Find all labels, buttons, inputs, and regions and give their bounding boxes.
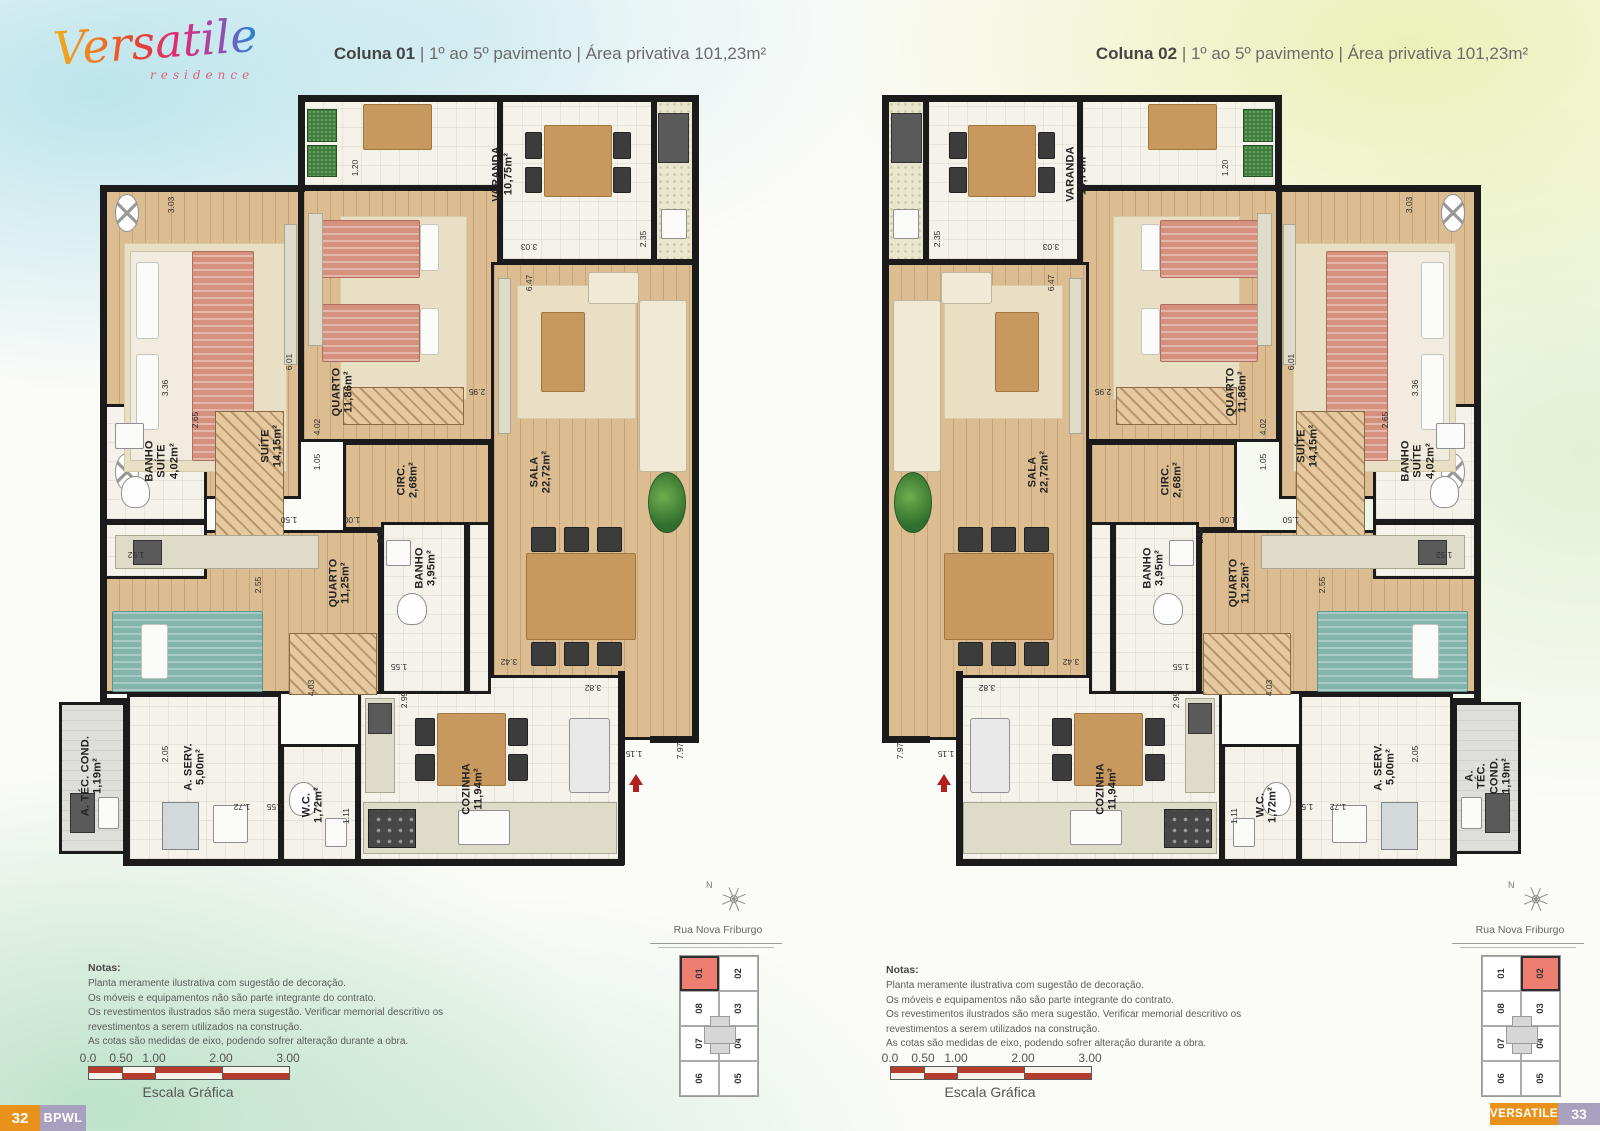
furniture-chair: [525, 132, 543, 159]
furniture-toilet: [1153, 593, 1183, 625]
furniture-pillow: [136, 262, 160, 338]
dimension-label: 6.47: [524, 275, 534, 292]
furniture-appliance: [1485, 793, 1510, 833]
scale-bar-cell: [89, 1073, 123, 1079]
dimension-label: 2.35: [638, 231, 648, 248]
scale-bar-cell: [891, 1073, 925, 1079]
furniture-sink: [458, 810, 510, 845]
scale-tick: 2.00: [209, 1051, 232, 1065]
room-label-a-tec-cond: A. TÉC. COND. 1,19m²: [80, 736, 105, 816]
dimension-label: 3.03: [166, 197, 176, 214]
furniture-pillow: [1141, 308, 1161, 355]
furniture-sink: [893, 209, 920, 240]
furniture-chair: [1145, 754, 1165, 782]
furniture-chair: [958, 527, 983, 551]
key-plan-left: NRua Nova Friburgo0102080307040605: [648, 872, 788, 1104]
scale-tick: 0.50: [911, 1051, 934, 1065]
key-unit-number: 05: [733, 1073, 744, 1084]
room-label-circ: CIRC. 2,68m²: [396, 462, 421, 498]
elevator-core: [710, 1016, 730, 1054]
dimension-label: 3.03: [1042, 242, 1059, 252]
dimension-label: 3.42: [1063, 657, 1080, 667]
scale-tick: 1.00: [142, 1051, 165, 1065]
furniture-sink: [1436, 423, 1466, 450]
furniture-appliance: [368, 703, 392, 734]
furniture-table: [1148, 104, 1216, 150]
scale-bar-cell: [156, 1073, 223, 1079]
room-label-banho: BANHO 3,95m²: [1142, 547, 1167, 588]
notes-line: Planta meramente ilustrativa com sugestã…: [88, 977, 508, 992]
key-unit-number: 01: [1496, 968, 1507, 979]
dimension-label: 2.55: [253, 577, 263, 594]
notes-line: As cotas são medidas de eixo, podendo so…: [886, 1037, 1306, 1052]
furniture-stove: [368, 809, 417, 849]
key-unit-number: 01: [694, 968, 705, 979]
furniture-table: [526, 553, 636, 641]
dimension-label: 3.82: [979, 683, 996, 693]
furniture-chair: [415, 754, 435, 782]
scale-bar-graphic: [88, 1066, 290, 1080]
furniture-appliance: [658, 113, 689, 163]
furniture-pillow: [420, 224, 440, 271]
dimension-label: 2.35: [932, 231, 942, 248]
room-label-banho-suite: BANHO SUÍTE 4,02m²: [1399, 440, 1436, 481]
furniture-planter: [1243, 145, 1273, 177]
room-label-quarto2: QUARTO 11,25m²: [327, 559, 352, 608]
wall: [123, 859, 624, 866]
furniture-sofa: [588, 272, 638, 304]
notes-line: Os móveis e equipamentos não são parte i…: [886, 994, 1306, 1009]
dimension-label: 1.55: [266, 802, 283, 812]
dimension-label: 1.15: [938, 749, 955, 759]
furniture-pillow: [1141, 224, 1161, 271]
notes-title: Notas:: [886, 964, 1306, 976]
dimension-label: 1.55: [391, 662, 408, 672]
column-01-header: Coluna 01 | 1º ao 5º pavimento | Área pr…: [320, 44, 780, 64]
wall: [692, 95, 699, 744]
furniture-bed: [322, 220, 420, 277]
dimension-label: 3.36: [1410, 380, 1420, 397]
key-unit-02: 02: [1521, 956, 1560, 991]
wall: [100, 185, 107, 705]
dimension-label: 2.05: [160, 745, 170, 762]
dimension-label: 3.03: [521, 242, 538, 252]
key-unit-01: 01: [680, 956, 719, 991]
furniture-chair: [415, 718, 435, 746]
column-02-title: Coluna 02: [1096, 44, 1177, 63]
elevator-core: [1512, 1016, 1532, 1054]
key-building-outline: 0102080307040605: [1481, 955, 1561, 1097]
wall: [956, 859, 1457, 866]
furniture-sink: [1169, 540, 1194, 567]
furniture-chair: [531, 527, 556, 551]
scale-bar-cell: [925, 1073, 959, 1079]
scale-tick: 0.0: [80, 1051, 97, 1065]
furniture-chair: [1052, 718, 1072, 746]
furniture-stove: [1164, 809, 1213, 849]
column-01-info: | 1º ao 5º pavimento | Área privativa 10…: [420, 44, 766, 63]
dimension-label: 1.00: [343, 515, 360, 525]
furniture-chair: [1052, 754, 1072, 782]
room-label-suite: SUÍTE 14,15m²: [1296, 424, 1321, 466]
key-plan-right: NRua Nova Friburgo0102080307040605: [1450, 872, 1590, 1104]
furniture-chair: [613, 167, 631, 194]
furniture-sink: [661, 209, 688, 240]
furniture-chair: [1024, 527, 1049, 551]
dimension-label: 2.55: [1195, 527, 1205, 544]
dimension-label: 1.05: [312, 454, 322, 471]
street-line: [1452, 943, 1584, 944]
logo-subtitle-text: residence: [150, 68, 315, 82]
dimension-label: 4.02: [312, 418, 322, 435]
room-cabinet-shaft: [467, 522, 491, 694]
furniture-pillow: [136, 354, 160, 430]
dimension-label: 4.03: [1264, 680, 1274, 697]
entrance-arrow-icon: [937, 774, 951, 785]
dimension-label: 3.36: [160, 380, 170, 397]
room-cabinet-shaft: [1089, 522, 1113, 694]
key-unit-02: 02: [719, 956, 758, 991]
key-unit-06: 06: [1482, 1061, 1521, 1096]
column-02-info: | 1º ao 5º pavimento | Área privativa 10…: [1182, 44, 1528, 63]
dimension-label: 2.05: [1410, 745, 1420, 762]
north-label: N: [1508, 880, 1515, 890]
furniture-counter: [284, 224, 297, 365]
floor-plan-column-01: VARANDA 10,75m²SUÍTE 14,15m²QUARTO 11,86…: [103, 98, 695, 862]
furniture-sink: [115, 423, 145, 450]
street-line: [1460, 947, 1576, 948]
scale-tick: 1.00: [944, 1051, 967, 1065]
wall: [298, 95, 305, 192]
furniture-planter: [307, 109, 337, 141]
furniture-table: [968, 125, 1036, 198]
dimension-label: 1.55: [1173, 662, 1190, 672]
room-label-banho-suite: BANHO SUÍTE 4,02m²: [144, 440, 181, 481]
street-line: [658, 947, 774, 948]
scale-bar-row: [89, 1073, 289, 1079]
furniture-chair: [613, 132, 631, 159]
dimension-label: 1.20: [350, 160, 360, 177]
room-label-sala: SALA 22,72m²: [529, 451, 554, 493]
furniture-wardrobe: [289, 633, 377, 696]
furniture-counter: [1283, 224, 1296, 365]
furniture-counter: [308, 213, 322, 347]
dimension-label: 6.01: [1286, 353, 1296, 370]
dimension-label: 3.42: [500, 657, 517, 667]
furniture-plant-icon: [648, 472, 686, 533]
column-02-header: Coluna 02 | 1º ao 5º pavimento | Área pr…: [1082, 44, 1542, 64]
key-unit-number: 06: [694, 1073, 705, 1084]
furniture-wardrobe: [343, 387, 464, 425]
furniture-table: [541, 312, 585, 392]
dimension-label: 3.82: [585, 683, 602, 693]
scale-caption: Escala Gráfica: [88, 1084, 288, 1100]
furniture-table: [363, 104, 431, 150]
furniture-chair: [525, 167, 543, 194]
notes-line: Os revestimentos ilustrados são mera sug…: [886, 1008, 1306, 1023]
furniture-wardrobe: [1203, 633, 1291, 696]
brochure-page: Versatile residence Coluna 01 | 1º ao 5º…: [0, 0, 1600, 1131]
scale-caption: Escala Gráfica: [890, 1084, 1090, 1100]
furniture-chair: [991, 527, 1016, 551]
dimension-label: 1.55: [1297, 802, 1314, 812]
furniture-pillow: [1412, 624, 1439, 679]
dimension-label: 4.03: [306, 680, 316, 697]
street-line: [650, 943, 782, 944]
furniture-table: [995, 312, 1039, 392]
furniture-washing-machine: [1381, 802, 1418, 849]
dimension-label: 1.05: [1258, 454, 1268, 471]
compass-icon: [715, 882, 751, 920]
furniture-bed: [1160, 220, 1258, 277]
dimension-label: 6.01: [284, 353, 294, 370]
furniture-appliance: [891, 113, 922, 163]
scale-bar-cell: [223, 1073, 289, 1079]
furniture-fridge: [970, 718, 1010, 793]
room-label-cozinha: COZINHA 11,94m²: [1095, 764, 1120, 816]
scale-bar-cell: [1025, 1073, 1091, 1079]
key-unit-number: 03: [1535, 1003, 1546, 1014]
dimension-label: 7.97: [895, 743, 905, 760]
scale-tick-labels: 0.00.501.002.003.00: [890, 1051, 1100, 1066]
furniture-table: [544, 125, 612, 198]
dimension-label: 4.02: [1258, 418, 1268, 435]
key-unit-number: 02: [733, 968, 744, 979]
versatile-logo: Versatile residence: [55, 26, 315, 82]
key-unit-01: 01: [1482, 956, 1521, 991]
scale-bar-left: 0.00.501.002.003.00Escala Gráfica: [88, 1051, 298, 1100]
wall: [298, 95, 699, 102]
wall: [956, 671, 963, 865]
wall: [123, 698, 130, 865]
column-01-title: Coluna 01: [334, 44, 415, 63]
furniture-chair: [597, 642, 622, 666]
scale-tick: 0.50: [109, 1051, 132, 1065]
key-unit-05: 05: [719, 1061, 758, 1096]
furniture-chair: [508, 718, 528, 746]
furniture-chair: [564, 642, 589, 666]
room-label-a-tec-cond: A. TÉC. COND. 1,19m²: [1463, 758, 1512, 794]
dimension-label: 1.11: [341, 808, 351, 824]
notes-line: revestimentos a serem utilizados na cons…: [886, 1023, 1306, 1038]
furniture-bed: [322, 304, 420, 361]
brand-badge-right: VERSATILE: [1490, 1103, 1558, 1125]
north-label: N: [706, 880, 713, 890]
furniture-chair: [949, 167, 967, 194]
room-label-a-serv: A. SERV. 5,00m²: [1373, 743, 1398, 790]
furniture-planter: [307, 145, 337, 177]
scale-tick: 3.00: [276, 1051, 299, 1065]
dimension-label: 1.50: [1282, 515, 1299, 525]
dimension-label: 2.99: [1171, 692, 1181, 709]
furniture-sink: [1070, 810, 1122, 845]
key-unit-number: 06: [1496, 1073, 1507, 1084]
scale-tick: 3.00: [1078, 1051, 1101, 1065]
furniture-bed: [112, 611, 263, 691]
furniture-chair: [991, 642, 1016, 666]
furniture-chair: [564, 527, 589, 551]
page-number-right: 33: [1558, 1103, 1600, 1125]
room-label-banho: BANHO 3,95m²: [413, 547, 438, 588]
scale-tick-labels: 0.00.501.002.003.00: [88, 1051, 298, 1066]
dimension-label: 1.52: [127, 550, 144, 560]
compass-icon: [1517, 882, 1553, 920]
furniture-bed: [1160, 304, 1258, 361]
key-unit-number: 02: [1535, 968, 1546, 979]
furniture-sofa: [639, 300, 688, 472]
wall: [100, 185, 305, 192]
wall: [1474, 185, 1481, 705]
dimension-label: 1.20: [1220, 160, 1230, 177]
notes-block-right: Notas: Planta meramente ilustrativa com …: [886, 964, 1306, 1052]
scale-bar-cell: [958, 1073, 1025, 1079]
furniture-counter: [1069, 278, 1082, 435]
scale-bar-cell: [123, 1073, 157, 1079]
furniture-appliance: [1188, 703, 1212, 734]
scale-bar-graphic: [890, 1066, 1092, 1080]
key-unit-06: 06: [680, 1061, 719, 1096]
notes-line: As cotas são medidas de eixo, podendo so…: [88, 1035, 508, 1050]
street-label: Rua Nova Friburgo: [648, 924, 788, 936]
dimension-label: 1.50: [281, 515, 298, 525]
key-unit-number: 08: [1496, 1003, 1507, 1014]
furniture-chair: [508, 754, 528, 782]
dimension-label: 2.95: [469, 387, 486, 397]
key-unit-number: 08: [694, 1003, 705, 1014]
furniture-pillow: [1421, 262, 1445, 338]
dimension-label: 7.97: [675, 743, 685, 760]
wall: [1450, 698, 1457, 865]
room-label-sala: SALA 22,72m²: [1027, 451, 1052, 493]
dimension-label: 2.55: [375, 527, 385, 544]
furniture-chair: [531, 642, 556, 666]
dimension-label: 2.65: [1380, 412, 1390, 429]
furniture-wardrobe: [1116, 387, 1237, 425]
dimension-label: 1.72: [234, 802, 251, 812]
dimension-label: 2.55: [1317, 577, 1327, 594]
dimension-label: 2.65: [190, 412, 200, 429]
furniture-sink: [1461, 797, 1482, 829]
wall: [882, 95, 1283, 102]
key-unit-number: 03: [733, 1003, 744, 1014]
notes-line: Os revestimentos ilustrados são mera sug…: [88, 1006, 508, 1021]
notes-line: Planta meramente ilustrativa com sugestã…: [886, 979, 1306, 994]
furniture-counter: [1257, 213, 1271, 347]
wall: [1275, 95, 1282, 192]
furniture-planter: [1243, 109, 1273, 141]
furniture-ceiling-fan-icon: [115, 194, 139, 232]
scale-tick: 2.00: [1011, 1051, 1034, 1065]
room-label-quarto2: QUARTO 11,25m²: [1228, 559, 1253, 608]
furniture-washing-machine: [162, 802, 199, 849]
entrance-arrow-icon: [629, 774, 643, 785]
furniture-bed: [1317, 611, 1468, 691]
notes-block-left: Notas: Planta meramente ilustrativa com …: [88, 962, 508, 1050]
wall: [618, 671, 625, 865]
furniture-chair: [949, 132, 967, 159]
room-label-quarto1: QUARTO 11,86m²: [330, 368, 355, 417]
dimension-label: 1.52: [1436, 550, 1453, 560]
dimension-label: 1.72: [1330, 802, 1347, 812]
key-unit-number: 05: [1535, 1073, 1546, 1084]
scale-bar-row: [891, 1073, 1091, 1079]
furniture-chair: [1145, 718, 1165, 746]
furniture-fridge: [569, 718, 609, 793]
scale-bar-right: 0.00.501.002.003.00Escala Gráfica: [890, 1051, 1100, 1100]
furniture-table: [944, 553, 1054, 641]
room-label-varanda: VARANDA 10,75m²: [1065, 147, 1090, 203]
scale-tick: 0.0: [882, 1051, 899, 1065]
furniture-counter: [498, 278, 511, 435]
notes-line: Os móveis e equipamentos não são parte i…: [88, 992, 508, 1007]
dimension-label: 6.47: [1046, 275, 1056, 292]
room-label-wc: W.C. 1,72m²: [301, 787, 326, 823]
furniture-pillow: [1421, 354, 1445, 430]
dimension-label: 2.95: [1095, 387, 1112, 397]
brand-badge-left: BPWL: [40, 1105, 86, 1131]
street-label: Rua Nova Friburgo: [1450, 924, 1590, 936]
dimension-label: 1.15: [626, 749, 643, 759]
room-label-quarto1: QUARTO 11,86m²: [1225, 368, 1250, 417]
logo-brand-text: Versatile: [52, 8, 315, 72]
furniture-pillow: [420, 308, 440, 355]
furniture-chair: [1038, 167, 1056, 194]
dimension-label: 2.99: [399, 692, 409, 709]
room-label-wc: W.C. 1,72m²: [1255, 787, 1280, 823]
room-label-circ: CIRC. 2,68m²: [1160, 462, 1185, 498]
furniture-chair: [597, 527, 622, 551]
furniture-sofa: [941, 272, 991, 304]
dimension-label: 3.03: [1404, 197, 1414, 214]
furniture-ceiling-fan-icon: [1441, 194, 1465, 232]
room-label-varanda: VARANDA 10,75m²: [490, 147, 515, 203]
room-label-cozinha: COZINHA 11,94m²: [461, 764, 486, 816]
dimension-label: 1.11: [1229, 808, 1239, 824]
furniture-sofa: [893, 300, 942, 472]
room-label-suite: SUÍTE 14,15m²: [259, 424, 284, 466]
wall: [882, 736, 930, 743]
furniture-chair: [1024, 642, 1049, 666]
key-unit-05: 05: [1521, 1061, 1560, 1096]
furniture-sink: [386, 540, 411, 567]
page-number-left: 32: [0, 1105, 40, 1131]
notes-line: revestimentos a serem utilizados na cons…: [88, 1021, 508, 1036]
furniture-chair: [1038, 132, 1056, 159]
notes-title: Notas:: [88, 962, 508, 974]
dimension-label: 1.00: [1220, 515, 1237, 525]
furniture-pillow: [141, 624, 168, 679]
wall: [1275, 185, 1480, 192]
furniture-chair: [958, 642, 983, 666]
wall: [882, 95, 889, 744]
room-label-a-serv: A. SERV. 5,00m²: [182, 743, 207, 790]
furniture-toilet: [397, 593, 427, 625]
key-building-outline: 0102080307040605: [679, 955, 759, 1097]
floor-plan-column-02: VARANDA 10,75m²SUÍTE 14,15m²QUARTO 11,86…: [885, 98, 1477, 862]
